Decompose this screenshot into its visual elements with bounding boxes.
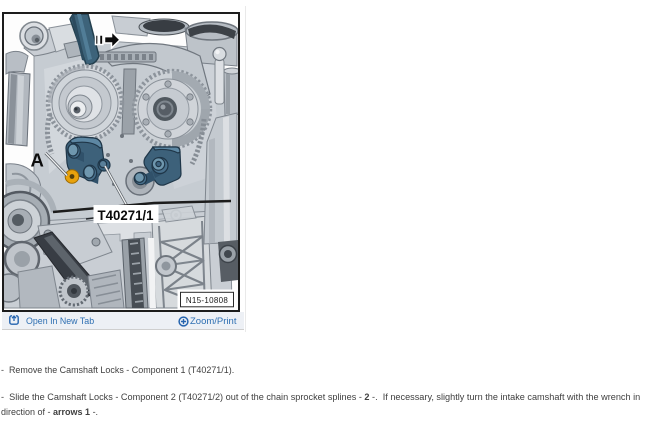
svg-text:T40271/1: T40271/1 <box>98 207 154 223</box>
svg-text:A: A <box>31 150 44 171</box>
svg-text:N15-10808: N15-10808 <box>186 296 229 305</box>
